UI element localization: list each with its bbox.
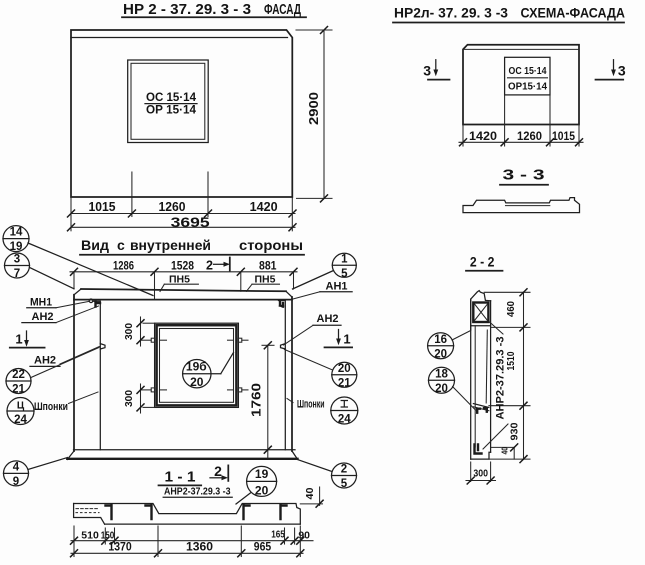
svg-text:7: 7 [14,268,20,280]
svg-text:АН2: АН2 [32,311,54,323]
svg-text:1: 1 [341,253,348,265]
svg-text:1: 1 [343,332,350,347]
svg-text:18: 18 [435,368,448,380]
svg-text:20: 20 [190,375,204,389]
svg-text:МН1: МН1 [30,296,52,308]
svg-text:Вид: Вид [81,237,109,253]
svg-text:ОС 15·14: ОС 15·14 [509,66,547,77]
svg-text:20: 20 [338,363,351,375]
svg-text:20: 20 [434,348,447,360]
svg-text:9: 9 [13,476,19,488]
svg-text:24: 24 [14,414,27,426]
svg-text:165: 165 [271,529,285,541]
svg-text:3: 3 [14,254,20,266]
svg-text:881: 881 [259,261,277,273]
svg-text:2900: 2900 [307,92,321,125]
svg-text:21: 21 [12,384,25,396]
svg-text:ФАСАД: ФАСАД [264,2,301,18]
svg-text:1420: 1420 [250,199,278,214]
svg-text:2 - 2: 2 - 2 [470,253,495,269]
svg-text:1260: 1260 [159,199,186,214]
svg-text:1370: 1370 [108,542,131,554]
svg-text:ОР 15·14: ОР 15·14 [146,105,197,117]
svg-text:2: 2 [214,463,222,479]
svg-text:с: с [117,237,125,253]
svg-text:1420: 1420 [469,129,497,143]
svg-text:20: 20 [255,484,269,498]
svg-text:3: 3 [423,63,431,79]
svg-text:АНР2-37.29.3 -3: АНР2-37.29.3 -3 [495,337,507,420]
svg-text:стороны: стороны [239,237,303,253]
svg-text:40: 40 [304,487,316,499]
svg-text:ОР15·14: ОР15·14 [508,82,547,93]
svg-text:300: 300 [124,390,135,407]
svg-text:1 - 1: 1 - 1 [165,469,196,486]
svg-text:2: 2 [206,258,213,272]
svg-text:1286: 1286 [113,261,134,273]
svg-text:АН1: АН1 [326,280,348,292]
svg-text:СХЕМА-ФАСАДА: СХЕМА-ФАСАДА [521,4,626,20]
svg-text:930: 930 [509,422,521,440]
svg-text:НР 2 - 37. 29. 3 - 3: НР 2 - 37. 29. 3 - 3 [123,2,251,18]
svg-text:Ц: Ц [17,401,25,412]
svg-text:3695: 3695 [171,215,211,230]
svg-text:19: 19 [10,241,23,253]
svg-text:3 - 3: 3 - 3 [503,167,545,184]
svg-text:2: 2 [341,464,347,476]
svg-text:1760: 1760 [250,383,264,417]
svg-text:АН2: АН2 [34,355,56,367]
svg-text:4: 4 [13,461,20,473]
svg-text:внутренней: внутренней [130,237,211,253]
svg-text:1510: 1510 [505,351,517,370]
svg-text:1360: 1360 [186,542,213,554]
svg-text:1: 1 [15,332,22,347]
svg-text:НР2л- 37. 29. 3 -3: НР2л- 37. 29. 3 -3 [394,4,508,20]
svg-text:1015: 1015 [89,199,116,214]
svg-text:ОС 15·14: ОС 15·14 [146,92,197,104]
svg-text:460: 460 [505,301,517,317]
svg-text:300: 300 [124,323,135,340]
svg-text:ПН5: ПН5 [169,273,190,285]
svg-text:1015: 1015 [552,129,575,143]
svg-text:965: 965 [254,542,272,554]
svg-text:40: 40 [500,447,510,455]
svg-text:22: 22 [12,369,25,381]
svg-text:3: 3 [618,63,626,79]
svg-text:300: 300 [473,467,488,479]
svg-text:20: 20 [435,383,448,395]
svg-text:21: 21 [338,377,351,389]
svg-text:1260: 1260 [517,129,542,143]
svg-text:14: 14 [10,227,23,239]
svg-text:1528: 1528 [171,261,195,273]
svg-text:19б: 19б [186,360,207,374]
svg-text:5: 5 [341,478,348,490]
svg-text:19: 19 [255,467,269,481]
svg-text:АНР2-37.29.3 -3: АНР2-37.29.3 -3 [164,485,231,497]
svg-text:510: 510 [81,530,99,542]
svg-text:16: 16 [434,334,447,346]
svg-text:150: 150 [101,530,115,542]
svg-text:5: 5 [341,268,348,280]
svg-text:24: 24 [338,414,351,426]
svg-text:ПН5: ПН5 [255,273,276,285]
svg-text:АН2: АН2 [317,313,339,325]
svg-text:Шпонки: Шпонки [297,399,325,411]
svg-text:Шпонки: Шпонки [34,401,68,413]
